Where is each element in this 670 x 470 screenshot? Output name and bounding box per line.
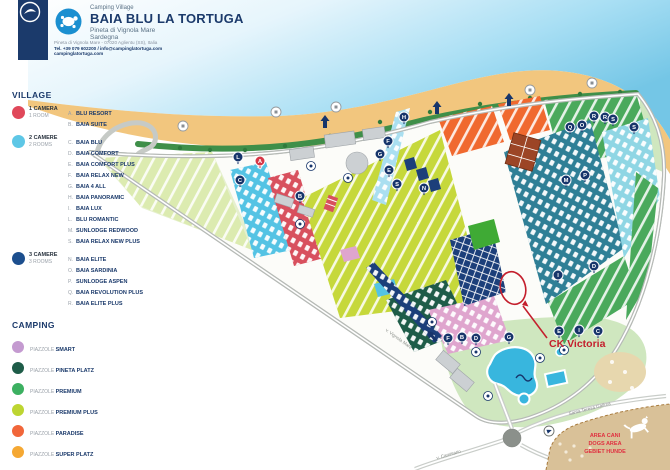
svg-text:O: O	[580, 123, 585, 129]
village-legend-item: S.BAIA RELAX NEW PLUS	[68, 235, 167, 246]
svg-text:F: F	[386, 139, 390, 145]
category-label-en: 1 ROOM	[29, 113, 58, 119]
camping-legend: PIAZZOLE SMARTPIAZZOLE PINETA PLATZPIAZZ…	[12, 336, 167, 462]
village-legend-item: H.BAIA PANORAMIC	[68, 191, 167, 202]
annotation-label: CK Victoria	[549, 338, 606, 350]
direction-icon	[544, 426, 554, 436]
subtitle-location: Pineta di Vignola Mare	[90, 27, 244, 34]
svg-text:H: H	[402, 115, 406, 121]
svg-text:E: E	[557, 329, 561, 335]
category-label-it: 2 CAMERE	[29, 135, 57, 142]
svg-text:E: E	[387, 168, 391, 174]
svg-text:B: B	[460, 335, 464, 341]
village-category: 1 CAMERA1 ROOMA.BLU RESORTB.BAIA SUITE	[12, 106, 167, 129]
village-legend-item: P.SUNLODGE ASPEN	[68, 275, 167, 286]
svg-text:G: G	[378, 152, 383, 158]
pitch-color-dot	[12, 362, 24, 374]
pitch-color-dot	[12, 425, 24, 437]
village-legend-item: A.BLU RESORT	[68, 107, 167, 118]
camping-legend-item: PIAZZOLE PREMIUM PLUS	[12, 399, 167, 420]
camping-legend-item: PIAZZOLE SUPER PLATZ	[12, 441, 167, 462]
village-legend-item: I.BAIA LUX	[68, 202, 167, 213]
category-color-dot	[12, 135, 25, 148]
village-legend: 1 CAMERA1 ROOMA.BLU RESORTB.BAIA SUITE2 …	[12, 106, 167, 308]
svg-text:S: S	[611, 117, 615, 123]
svg-text:Q: Q	[568, 125, 573, 131]
village-legend-title: VILLAGE	[12, 90, 167, 100]
brand-logo-panel	[18, 0, 48, 60]
brand-logo-icon	[18, 0, 42, 24]
pitch-color-dot	[12, 446, 24, 458]
village-legend-item: C.BAIA BLU	[68, 136, 167, 147]
svg-text:L: L	[236, 155, 240, 161]
dog-area-label-de: GEBIET HUNDE	[584, 449, 626, 455]
svg-text:S: S	[395, 182, 399, 188]
svg-text:N: N	[422, 186, 426, 192]
pitch-color-dot	[12, 341, 24, 353]
category-label-en: 2 ROOMS	[29, 142, 57, 148]
category-label-it: 1 CAMERA	[29, 106, 58, 113]
dog-area-label-it: AREA CANI	[590, 433, 621, 439]
pitch-color-dot	[12, 404, 24, 416]
village-legend-item: O.BAIA SARDINIA	[68, 264, 167, 275]
svg-text:F: F	[446, 336, 450, 342]
minigolf-area	[594, 352, 646, 392]
village-legend-item: F.BAIA RELAX NEW	[68, 169, 167, 180]
village-legend-item: N.BAIA ELITE	[68, 253, 167, 264]
svg-text:M: M	[564, 178, 569, 184]
village-legend-item: G.BAIA 4 ALL	[68, 180, 167, 191]
legend: VILLAGE 1 CAMERA1 ROOMA.BLU RESORTB.BAIA…	[12, 90, 167, 462]
village-legend-item: B.BAIA SUITE	[68, 118, 167, 129]
svg-text:D: D	[592, 264, 596, 270]
svg-text:G: G	[507, 335, 512, 341]
category-color-dot	[12, 106, 25, 119]
pitch-color-dot	[12, 383, 24, 395]
svg-text:P: P	[583, 173, 587, 179]
campground-map-page: AREA CANI DOGS AREA GEBIET HUNDE	[0, 0, 670, 470]
camping-legend-title: CAMPING	[12, 320, 167, 330]
svg-text:D: D	[474, 336, 478, 342]
camping-legend-item: PIAZZOLE PREMIUM	[12, 378, 167, 399]
dog-area-label-en: DOGS AREA	[588, 441, 621, 447]
camping-legend-item: PIAZZOLE SMART	[12, 336, 167, 357]
camping-legend-item: PIAZZOLE PINETA PLATZ	[12, 357, 167, 378]
website-line: campinglatortuga.com	[54, 51, 162, 57]
village-legend-item: M.SUNLODGE REDWOOD	[68, 224, 167, 235]
village-legend-item: L.BLU ROMANTIC	[68, 213, 167, 224]
svg-text:S: S	[632, 125, 636, 131]
category-color-dot	[12, 252, 25, 265]
page-title: BAIA BLU LA TORTUGA	[90, 12, 244, 27]
village-category: 3 CAMERE3 ROOMSN.BAIA ELITEO.BAIA SARDIN…	[12, 252, 167, 308]
village-legend-item: R.BAIA ELITE PLUS	[68, 297, 167, 308]
roundabout	[503, 429, 521, 447]
category-label-en: 3 ROOMS	[29, 259, 57, 265]
address-line: Pineta di Vignola Mare - 07020 Aglientu …	[54, 40, 162, 46]
camping-legend-item: PIAZZOLE PARADISE	[12, 420, 167, 441]
village-legend-item: Q.BAIA REVOLUTION PLUS	[68, 286, 167, 297]
header: Camping Village BAIA BLU LA TORTUGA Pine…	[0, 0, 300, 64]
category-label-it: 3 CAMERE	[29, 252, 57, 259]
svg-text:B: B	[298, 194, 302, 200]
village-category: 2 CAMERE2 ROOMSC.BAIA BLUD.BAIA COMFORTE…	[12, 135, 167, 246]
village-legend-item: D.BAIA COMFORT	[68, 147, 167, 158]
village-legend-item: E.BAIA COMFORT PLUS	[68, 158, 167, 169]
